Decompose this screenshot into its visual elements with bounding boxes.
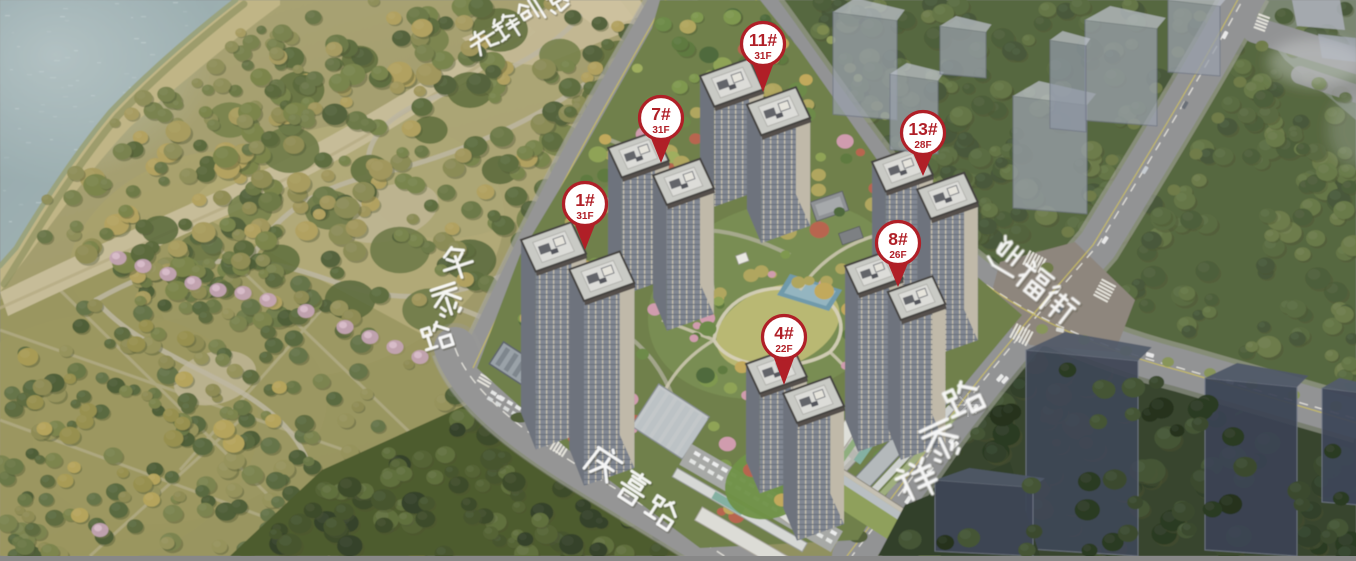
svg-text:26F: 26F — [889, 250, 906, 261]
svg-text:31F: 31F — [576, 211, 593, 222]
svg-text:28F: 28F — [914, 140, 931, 151]
svg-text:7#: 7# — [651, 104, 671, 124]
svg-text:11#: 11# — [749, 30, 777, 50]
svg-text:22F: 22F — [775, 344, 792, 355]
svg-text:4#: 4# — [774, 323, 794, 343]
svg-text:1#: 1# — [575, 190, 595, 210]
svg-text:13#: 13# — [908, 119, 937, 139]
svg-text:31F: 31F — [754, 51, 771, 62]
svg-text:8#: 8# — [888, 229, 908, 249]
svg-text:31F: 31F — [652, 125, 669, 136]
